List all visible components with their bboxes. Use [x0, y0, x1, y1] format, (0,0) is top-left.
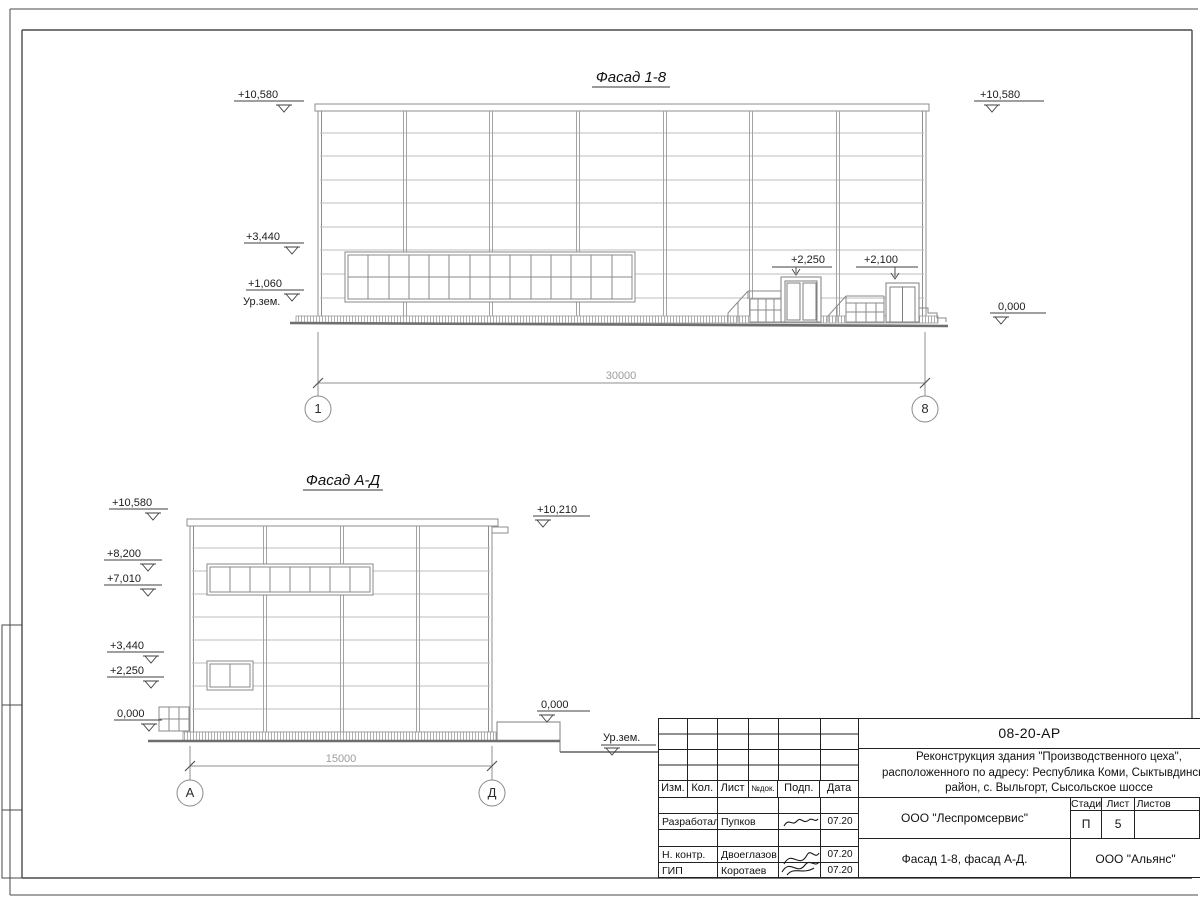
- col-kol: Кол.: [688, 781, 718, 797]
- elevation-mark: 0,000: [537, 699, 590, 722]
- columns-a-d: [264, 526, 420, 732]
- date-cell: 07.20: [821, 863, 859, 878]
- axis-label: 8: [921, 401, 928, 416]
- facade-1-8-view: +10,580 +3,440 +1,060 Ур.зем. +10,580 0,…: [234, 69, 1046, 422]
- ribbon-window-1-8: [345, 252, 635, 302]
- design-organization: ООО "Леспромсервис": [859, 798, 1071, 838]
- name-cell: Коротаев: [718, 863, 779, 878]
- elevation-value: +7,010: [107, 573, 141, 585]
- cell: [779, 798, 821, 814]
- name-cell: Двоеглазов: [718, 847, 779, 863]
- elevation-value: +8,200: [107, 548, 141, 560]
- signature-table: Разработал Пупков 07.20 Н. контр. Двоегл…: [659, 798, 858, 878]
- elevation-mark-door2: +2,100: [856, 254, 918, 279]
- roof-pipe: [492, 527, 508, 533]
- name-cell: Пупков: [718, 814, 779, 830]
- plinth-apron: [183, 732, 496, 741]
- cell: [659, 830, 718, 846]
- cell: [821, 798, 859, 814]
- elevation-value: 0,000: [541, 699, 569, 711]
- dimension-1-8: 30000 1 8: [305, 332, 938, 422]
- col-list: Лист: [718, 781, 749, 797]
- role-cell: Н. контр.: [659, 847, 718, 863]
- sheets-value: [1135, 811, 1200, 838]
- cell: [779, 830, 821, 846]
- elevation-mark: +10,580: [109, 497, 168, 520]
- title-block-right: 08-20-АР Реконструкция здания "Производс…: [859, 719, 1200, 877]
- drawing-sheet: +10,580 +3,440 +1,060 Ур.зем. +10,580 0,…: [0, 0, 1200, 900]
- elevation-mark: +7,010: [104, 573, 162, 596]
- col-izm: Изм.: [659, 781, 688, 797]
- project-description: Реконструкция здания "Производственного …: [859, 749, 1200, 798]
- elevation-value: +1,060: [248, 278, 282, 290]
- stage-sheet-table: Стадия Лист Листов П 5: [1071, 798, 1200, 838]
- elevation-mark-door1: +2,250: [772, 254, 832, 275]
- signature-scribble: [779, 846, 821, 878]
- parapet-a-d: [187, 519, 498, 526]
- elevation-value: 0,000: [998, 301, 1026, 313]
- cell: [718, 798, 779, 814]
- sheet-value: 5: [1102, 811, 1135, 838]
- role-cell: Разработал: [659, 814, 718, 830]
- customer-organization: ООО "Альянс": [1071, 839, 1200, 878]
- ground-level-label: Ур.зем.: [243, 296, 280, 308]
- elevation-mark: +10,580: [234, 89, 304, 112]
- ground-level-label: Ур.зем.: [603, 732, 640, 744]
- ribbon-window-a-d: [207, 564, 373, 595]
- elevation-value: +2,100: [864, 254, 898, 266]
- elevation-value: +3,440: [246, 231, 280, 243]
- elevation-mark: 0,000: [114, 708, 162, 731]
- ground-line-1-8: [290, 323, 948, 326]
- title-block-left: Изм. Кол. Лист №док. Подп. Дата Разработ…: [659, 719, 859, 877]
- project-line-3: район, с. Выльгорт, Сысольское шоссе: [859, 781, 1200, 797]
- side-platform: [497, 722, 560, 741]
- view-title: Фасад 1-8: [596, 69, 667, 86]
- bottom-row: Фасад 1-8, фасад А-Д. ООО "Альянс": [859, 839, 1200, 878]
- date-cell: 07.20: [821, 814, 859, 830]
- elevation-mark: +3,440: [107, 640, 164, 663]
- axis-label: 1: [314, 401, 321, 416]
- org-stage-row: ООО "Леспромсервис" Стадия Лист Листов П…: [859, 798, 1200, 839]
- elevation-value: +2,250: [791, 254, 825, 266]
- base-apron: [296, 316, 938, 323]
- cell: [718, 830, 779, 846]
- date-cell: 07.20: [821, 847, 859, 863]
- cell: [821, 830, 859, 846]
- revision-header-row: Изм. Кол. Лист №док. Подп. Дата: [659, 781, 858, 798]
- elevation-value: +10,210: [537, 504, 577, 516]
- elevation-value: +10,580: [980, 89, 1020, 101]
- sheet-label: Лист: [1102, 798, 1135, 810]
- elevation-mark: +2,250: [107, 665, 164, 688]
- door-2: [886, 283, 919, 322]
- parapet-1-8: [315, 104, 929, 111]
- project-line-2: расположенного по адресу: Республика Ком…: [859, 766, 1200, 782]
- cell: [659, 798, 718, 814]
- elevation-value: +10,580: [238, 89, 278, 101]
- elevation-mark: +10,210: [533, 504, 590, 527]
- axis-label: Д: [488, 785, 497, 800]
- revision-table: [659, 719, 858, 781]
- elevation-value: 0,000: [117, 708, 145, 720]
- facade-a-d-view: +10,580 +8,200 +7,010 +3,440 +2,250 0,00…: [104, 472, 658, 806]
- basement-grate: [159, 707, 189, 731]
- elevation-value: +10,580: [112, 497, 152, 509]
- document-code: 08-20-АР: [859, 719, 1200, 749]
- elevation-mark: +3,440: [244, 231, 304, 254]
- elevation-mark: +8,200: [104, 548, 162, 571]
- stage-label: Стадия: [1071, 798, 1102, 810]
- dimension-value: 15000: [326, 753, 357, 765]
- elevation-value: +3,440: [110, 640, 144, 652]
- col-podp: Подп.: [778, 781, 820, 797]
- signature-scribble: [780, 815, 820, 830]
- axis-label: А: [186, 785, 195, 800]
- title-block: Изм. Кол. Лист №док. Подп. Дата Разработ…: [658, 718, 1200, 878]
- col-data: Дата: [820, 781, 858, 797]
- small-window: [207, 661, 253, 690]
- door-1: [781, 277, 821, 322]
- stage-value: П: [1071, 811, 1102, 838]
- elevation-mark: +10,580: [974, 89, 1044, 112]
- dimension-value: 30000: [606, 370, 637, 382]
- project-line-1: Реконструкция здания "Производственного …: [859, 750, 1200, 766]
- role-cell: ГИП: [659, 863, 718, 878]
- sheet-title: Фасад 1-8, фасад А-Д.: [859, 839, 1071, 878]
- sheets-label: Листов: [1135, 798, 1200, 810]
- elevation-mark: 0,000: [990, 301, 1046, 324]
- col-ndoc: №док.: [749, 781, 779, 797]
- dimension-a-d: 15000 А Д: [177, 746, 505, 806]
- elevation-value: +2,250: [110, 665, 144, 677]
- view-title: Фасад А-Д: [306, 472, 381, 489]
